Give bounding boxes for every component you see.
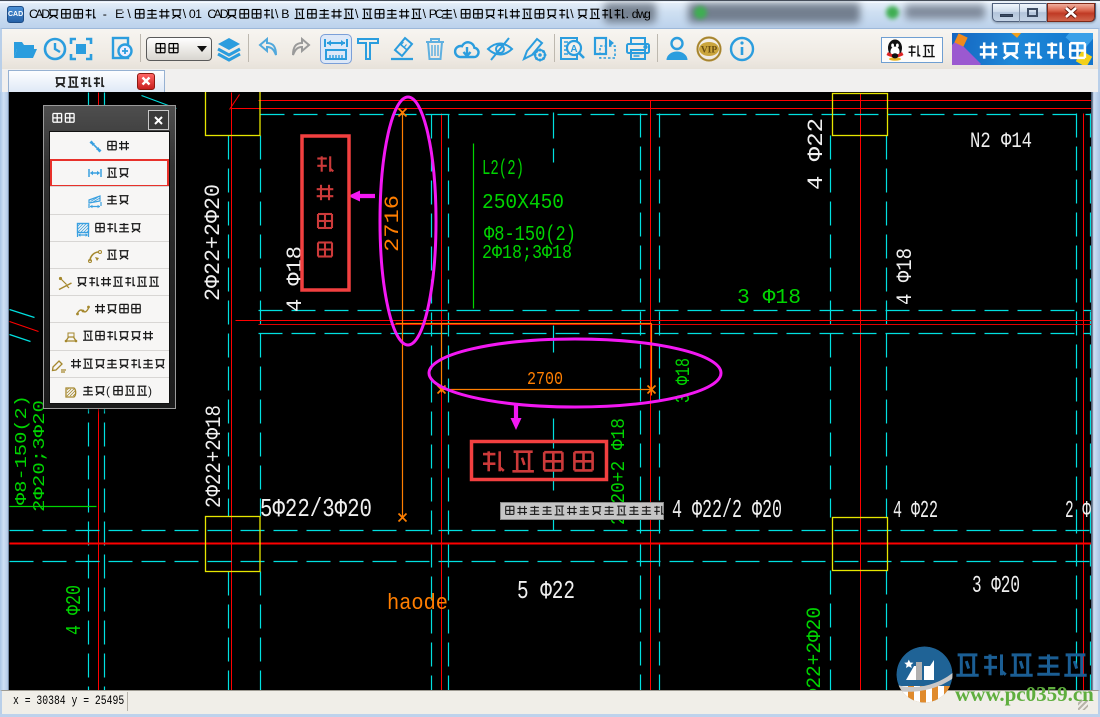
svg-text:D: D (41, 7, 50, 21)
svg-text:D: D (220, 7, 229, 21)
svg-text:4 Φ18: 4 Φ18 (893, 248, 918, 305)
svg-text:.: . (626, 7, 629, 21)
svg-text:2700: 2700 (527, 370, 563, 390)
svg-text:4 Φ22/2 Φ20: 4 Φ22/2 Φ20 (672, 495, 782, 525)
svg-text:\: \ (183, 7, 187, 21)
svg-text:2Φ22+2Φ20: 2Φ22+2Φ20 (804, 607, 827, 690)
svg-text:\: \ (355, 7, 359, 21)
svg-text:A: A (570, 44, 577, 55)
svg-text:2Φ20;3Φ20: 2Φ20;3Φ20 (31, 400, 50, 512)
svg-text:2Φ22+2Φ18: 2Φ22+2Φ18 (202, 405, 227, 508)
svg-text:2Φ18;3Φ18: 2Φ18;3Φ18 (482, 242, 572, 264)
svg-text:C: C (435, 7, 444, 21)
svg-text:B: B (281, 7, 289, 21)
svg-text:\: \ (453, 7, 457, 21)
svg-text:1: 1 (195, 7, 202, 21)
svg-text:4 Φ18: 4 Φ18 (283, 246, 308, 312)
svg-text:5 Φ22: 5 Φ22 (517, 576, 575, 606)
svg-text:g: g (644, 7, 651, 21)
svg-text:2 Φ: 2 Φ (1065, 498, 1091, 525)
svg-text:4 Φ20: 4 Φ20 (64, 585, 87, 635)
svg-text:2716: 2716 (382, 195, 405, 252)
svg-text:\: \ (570, 7, 574, 21)
svg-text:L2(2): L2(2) (482, 158, 524, 181)
svg-text:): ) (148, 384, 152, 398)
svg-text:4 Φ22: 4 Φ22 (804, 118, 829, 190)
svg-text:3 Φ18: 3 Φ18 (737, 287, 801, 310)
svg-text:5Φ22/3Φ20: 5Φ22/3Φ20 (260, 494, 372, 524)
svg-text::: : (121, 7, 124, 21)
svg-text:(: ( (106, 384, 110, 398)
svg-text:2Φ22+2Φ20: 2Φ22+2Φ20 (201, 184, 226, 301)
svg-text:\: \ (275, 7, 279, 21)
svg-text:\: \ (127, 7, 131, 21)
svg-text:haode: haode (387, 591, 448, 616)
svg-text:-: - (103, 7, 107, 21)
svg-text:250X450: 250X450 (482, 192, 564, 215)
svg-text:4 Φ22: 4 Φ22 (893, 498, 938, 525)
svg-text:VIP: VIP (701, 46, 718, 56)
svg-text:3 Φ20: 3 Φ20 (972, 573, 1020, 600)
svg-text:Φ8-150(2): Φ8-150(2) (13, 395, 32, 505)
svg-text:\: \ (423, 7, 427, 21)
svg-text:N2 Φ14: N2 Φ14 (970, 129, 1032, 154)
